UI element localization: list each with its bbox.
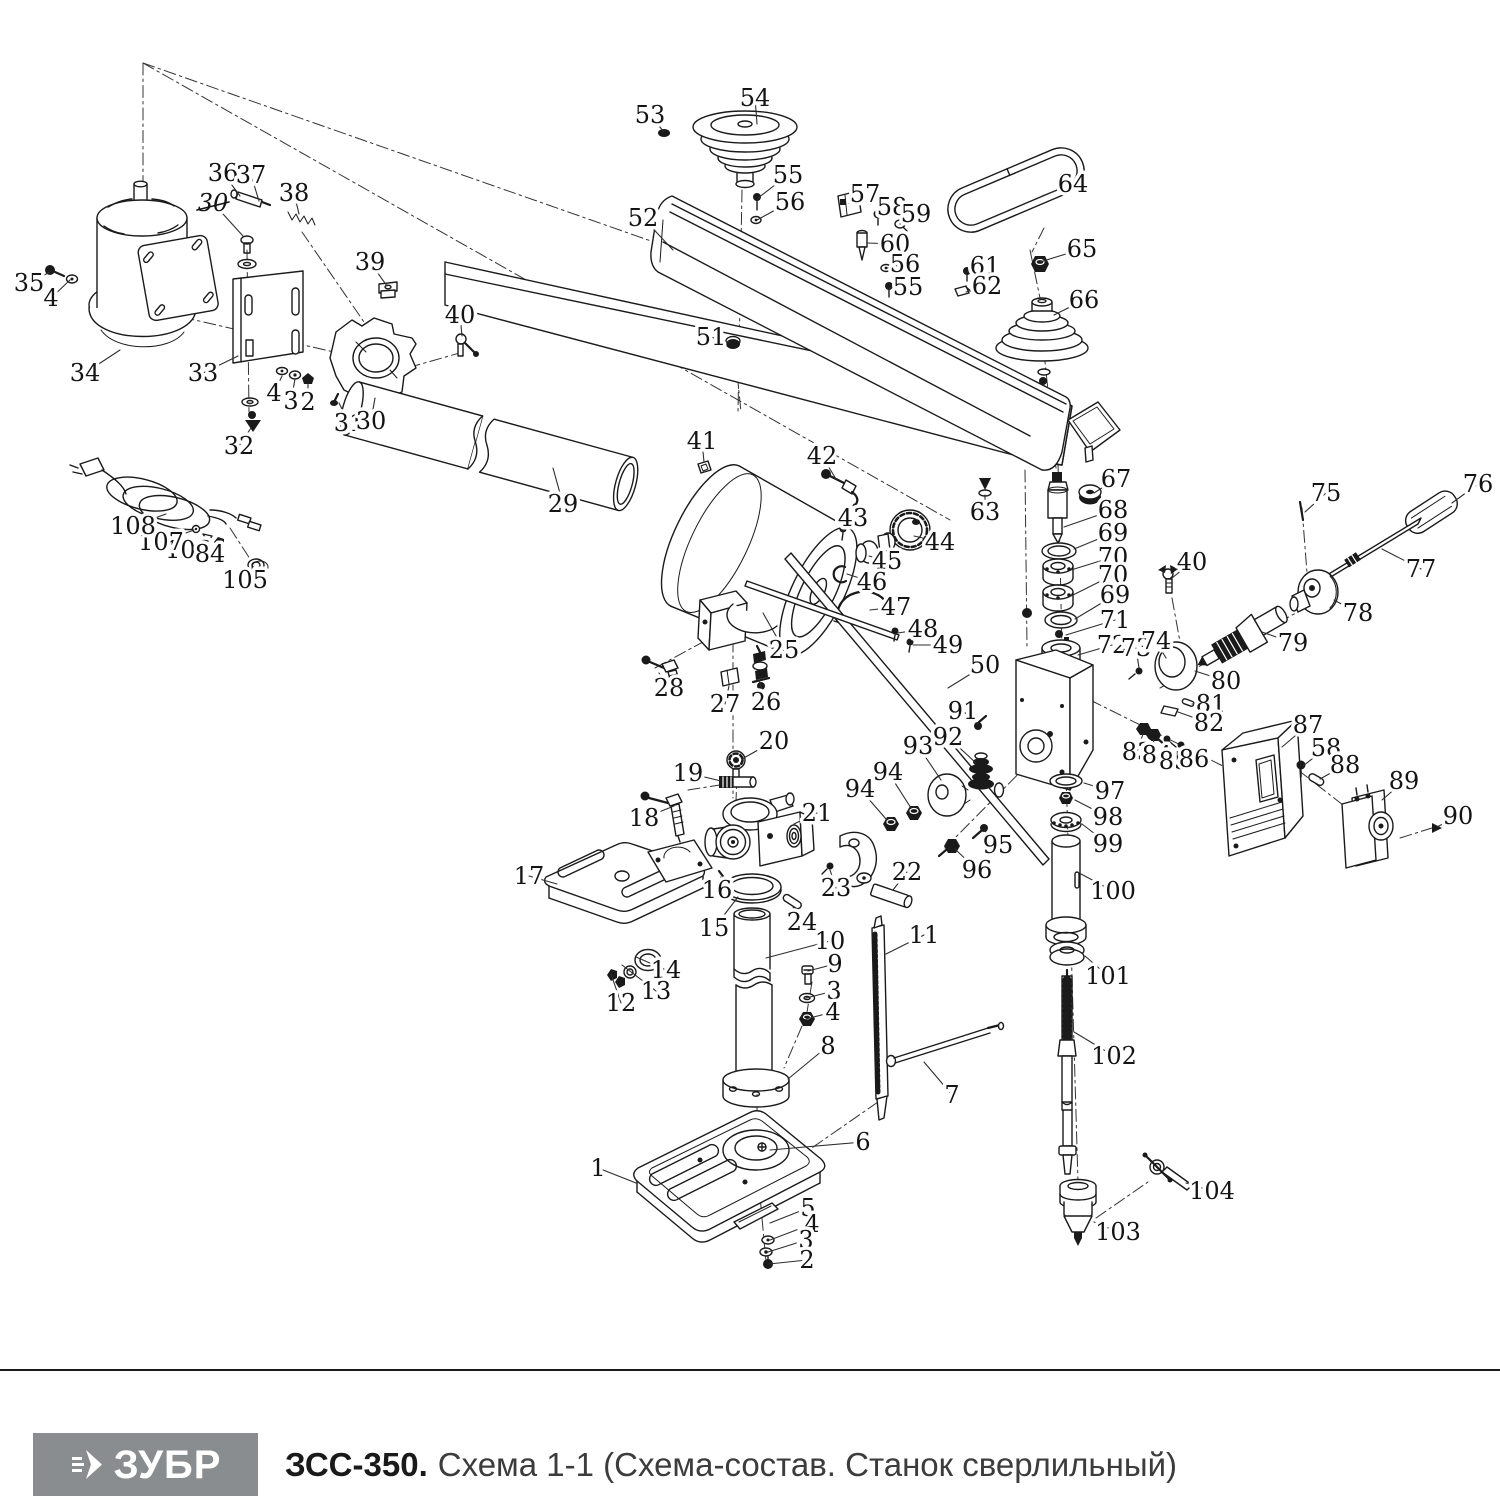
part-label-97: 97 <box>1095 777 1126 805</box>
part-label-17: 17 <box>514 862 545 890</box>
part-label-53: 53 <box>635 101 666 129</box>
part-label-94: 94 <box>873 758 904 786</box>
part-label-69: 69 <box>1100 581 1131 609</box>
part-label-52: 52 <box>628 204 659 232</box>
part-label-98: 98 <box>1093 803 1124 831</box>
part-label-51: 51 <box>696 323 727 351</box>
part-label-67: 67 <box>1101 465 1132 493</box>
part-label-88: 88 <box>1330 751 1361 779</box>
part-label-4: 4 <box>825 998 840 1026</box>
part-label-86: 86 <box>1179 745 1210 773</box>
part-label-89: 89 <box>1389 767 1420 795</box>
part-label-29: 29 <box>548 490 579 518</box>
part-label-1: 1 <box>590 1154 605 1182</box>
part-label-20: 20 <box>759 727 790 755</box>
part-label-42: 42 <box>807 442 838 470</box>
part-label-94: 94 <box>845 775 876 803</box>
part-label-4: 4 <box>266 379 281 407</box>
part-label-76: 76 <box>1463 470 1494 498</box>
part-label-59: 59 <box>901 200 932 228</box>
part-label-79: 79 <box>1278 629 1309 657</box>
exploded-parts-diagram: 5354555652575859605655616264656651363738… <box>0 0 1500 1500</box>
part-label-91: 91 <box>948 697 979 725</box>
spindle-pulley <box>996 256 1088 385</box>
part-label-36: 36 <box>208 159 239 187</box>
part-label-102: 102 <box>1091 1042 1137 1070</box>
part-label-104: 104 <box>1189 1177 1235 1205</box>
part-label-66: 66 <box>1069 286 1100 314</box>
part-label-78: 78 <box>1343 599 1374 627</box>
part-label-33: 33 <box>188 359 219 387</box>
part-label-57: 57 <box>850 180 881 208</box>
part-label-54: 54 <box>740 84 771 112</box>
part-label-55: 55 <box>893 273 924 301</box>
footer: ЗУБР ЗСС-350.Схема 1-1 (Схема-состав. Ст… <box>33 1433 1177 1496</box>
zubr-logo-text: ЗУБР <box>114 1445 222 1485</box>
part-label-74: 74 <box>1141 627 1172 655</box>
part-label-47: 47 <box>881 593 912 621</box>
part-label-9: 9 <box>827 950 842 978</box>
part-label-8: 8 <box>820 1032 835 1060</box>
part-label-56: 56 <box>775 188 806 216</box>
motor <box>45 181 219 347</box>
part-label-40: 40 <box>1177 548 1208 576</box>
part-label-71: 71 <box>1100 606 1131 634</box>
part-label-43: 43 <box>838 504 869 532</box>
part-label-21: 21 <box>802 799 833 827</box>
footer-rule <box>0 1369 1500 1371</box>
part-label-22: 22 <box>892 858 923 886</box>
part-label-35: 35 <box>14 269 45 297</box>
part-label-84: 84 <box>195 540 226 568</box>
part-label-30: 30 <box>356 407 387 435</box>
zubr-logo: ЗУБР <box>33 1433 258 1496</box>
part-label-19: 19 <box>673 759 704 787</box>
part-label-38: 38 <box>279 179 310 207</box>
spindle-upper-stack <box>1042 472 1101 673</box>
part-label-50: 50 <box>970 651 1001 679</box>
scheme-title: ЗСС-350.Схема 1-1 (Схема-состав. Станок … <box>285 1446 1177 1484</box>
part-label-27: 27 <box>710 690 741 718</box>
part-label-92: 92 <box>933 723 964 751</box>
part-label-2: 2 <box>799 1246 814 1274</box>
lower-column <box>723 908 1004 1120</box>
part-label-100: 100 <box>1090 877 1136 905</box>
part-label-34: 34 <box>70 359 101 387</box>
scheme-name: Схема 1-1 (Схема-состав. Станок сверлиль… <box>438 1446 1177 1483</box>
part-label-65: 65 <box>1067 235 1098 263</box>
base <box>634 1111 825 1269</box>
part-label-55: 55 <box>773 161 804 189</box>
part-label-95: 95 <box>983 831 1014 859</box>
part-label-63: 63 <box>970 498 1001 526</box>
part-label-49: 49 <box>933 631 964 659</box>
part-label-39: 39 <box>355 248 386 276</box>
part-label-37: 37 <box>236 161 267 189</box>
part-label-82: 82 <box>1194 709 1225 737</box>
part-label-103: 103 <box>1095 1218 1141 1246</box>
part-label-18: 18 <box>629 804 660 832</box>
part-label-44: 44 <box>925 528 956 556</box>
part-label-40: 40 <box>445 301 476 329</box>
part-label-16: 16 <box>702 876 733 904</box>
model-number: ЗСС-350. <box>285 1446 428 1483</box>
part-label-26: 26 <box>751 688 782 716</box>
part-label-2: 2 <box>300 388 315 416</box>
part-label-13: 13 <box>641 977 672 1005</box>
part-label-28: 28 <box>654 674 685 702</box>
part-label-108: 108 <box>110 512 156 540</box>
part-label-3: 3 <box>283 387 298 415</box>
part-label-23: 23 <box>821 874 852 902</box>
part-label-101: 101 <box>1085 962 1131 990</box>
part-label-75: 75 <box>1311 479 1342 507</box>
part-label-32: 32 <box>224 432 255 460</box>
headstock <box>644 453 876 673</box>
part-label-24: 24 <box>787 908 818 936</box>
part-label-6: 6 <box>855 1128 870 1156</box>
part-label-25: 25 <box>769 636 800 664</box>
part-label-93: 93 <box>903 732 934 760</box>
part-label-7: 7 <box>944 1081 959 1109</box>
part-label-11: 11 <box>909 921 940 949</box>
part-label-15: 15 <box>699 914 730 942</box>
part-label-105: 105 <box>222 566 268 594</box>
part-label-62: 62 <box>972 272 1003 300</box>
part-label-64: 64 <box>1058 170 1089 198</box>
part-label-12: 12 <box>606 989 637 1017</box>
part-label-41: 41 <box>687 427 718 455</box>
part-label-99: 99 <box>1093 830 1124 858</box>
part-label-96: 96 <box>962 856 993 884</box>
part-label-90: 90 <box>1443 802 1474 830</box>
part-label-4: 4 <box>43 284 58 312</box>
part-label-77: 77 <box>1406 555 1437 583</box>
upper-column-tube <box>336 380 643 513</box>
zubr-arrow-icon <box>70 1447 106 1483</box>
part-label-46: 46 <box>857 568 888 596</box>
